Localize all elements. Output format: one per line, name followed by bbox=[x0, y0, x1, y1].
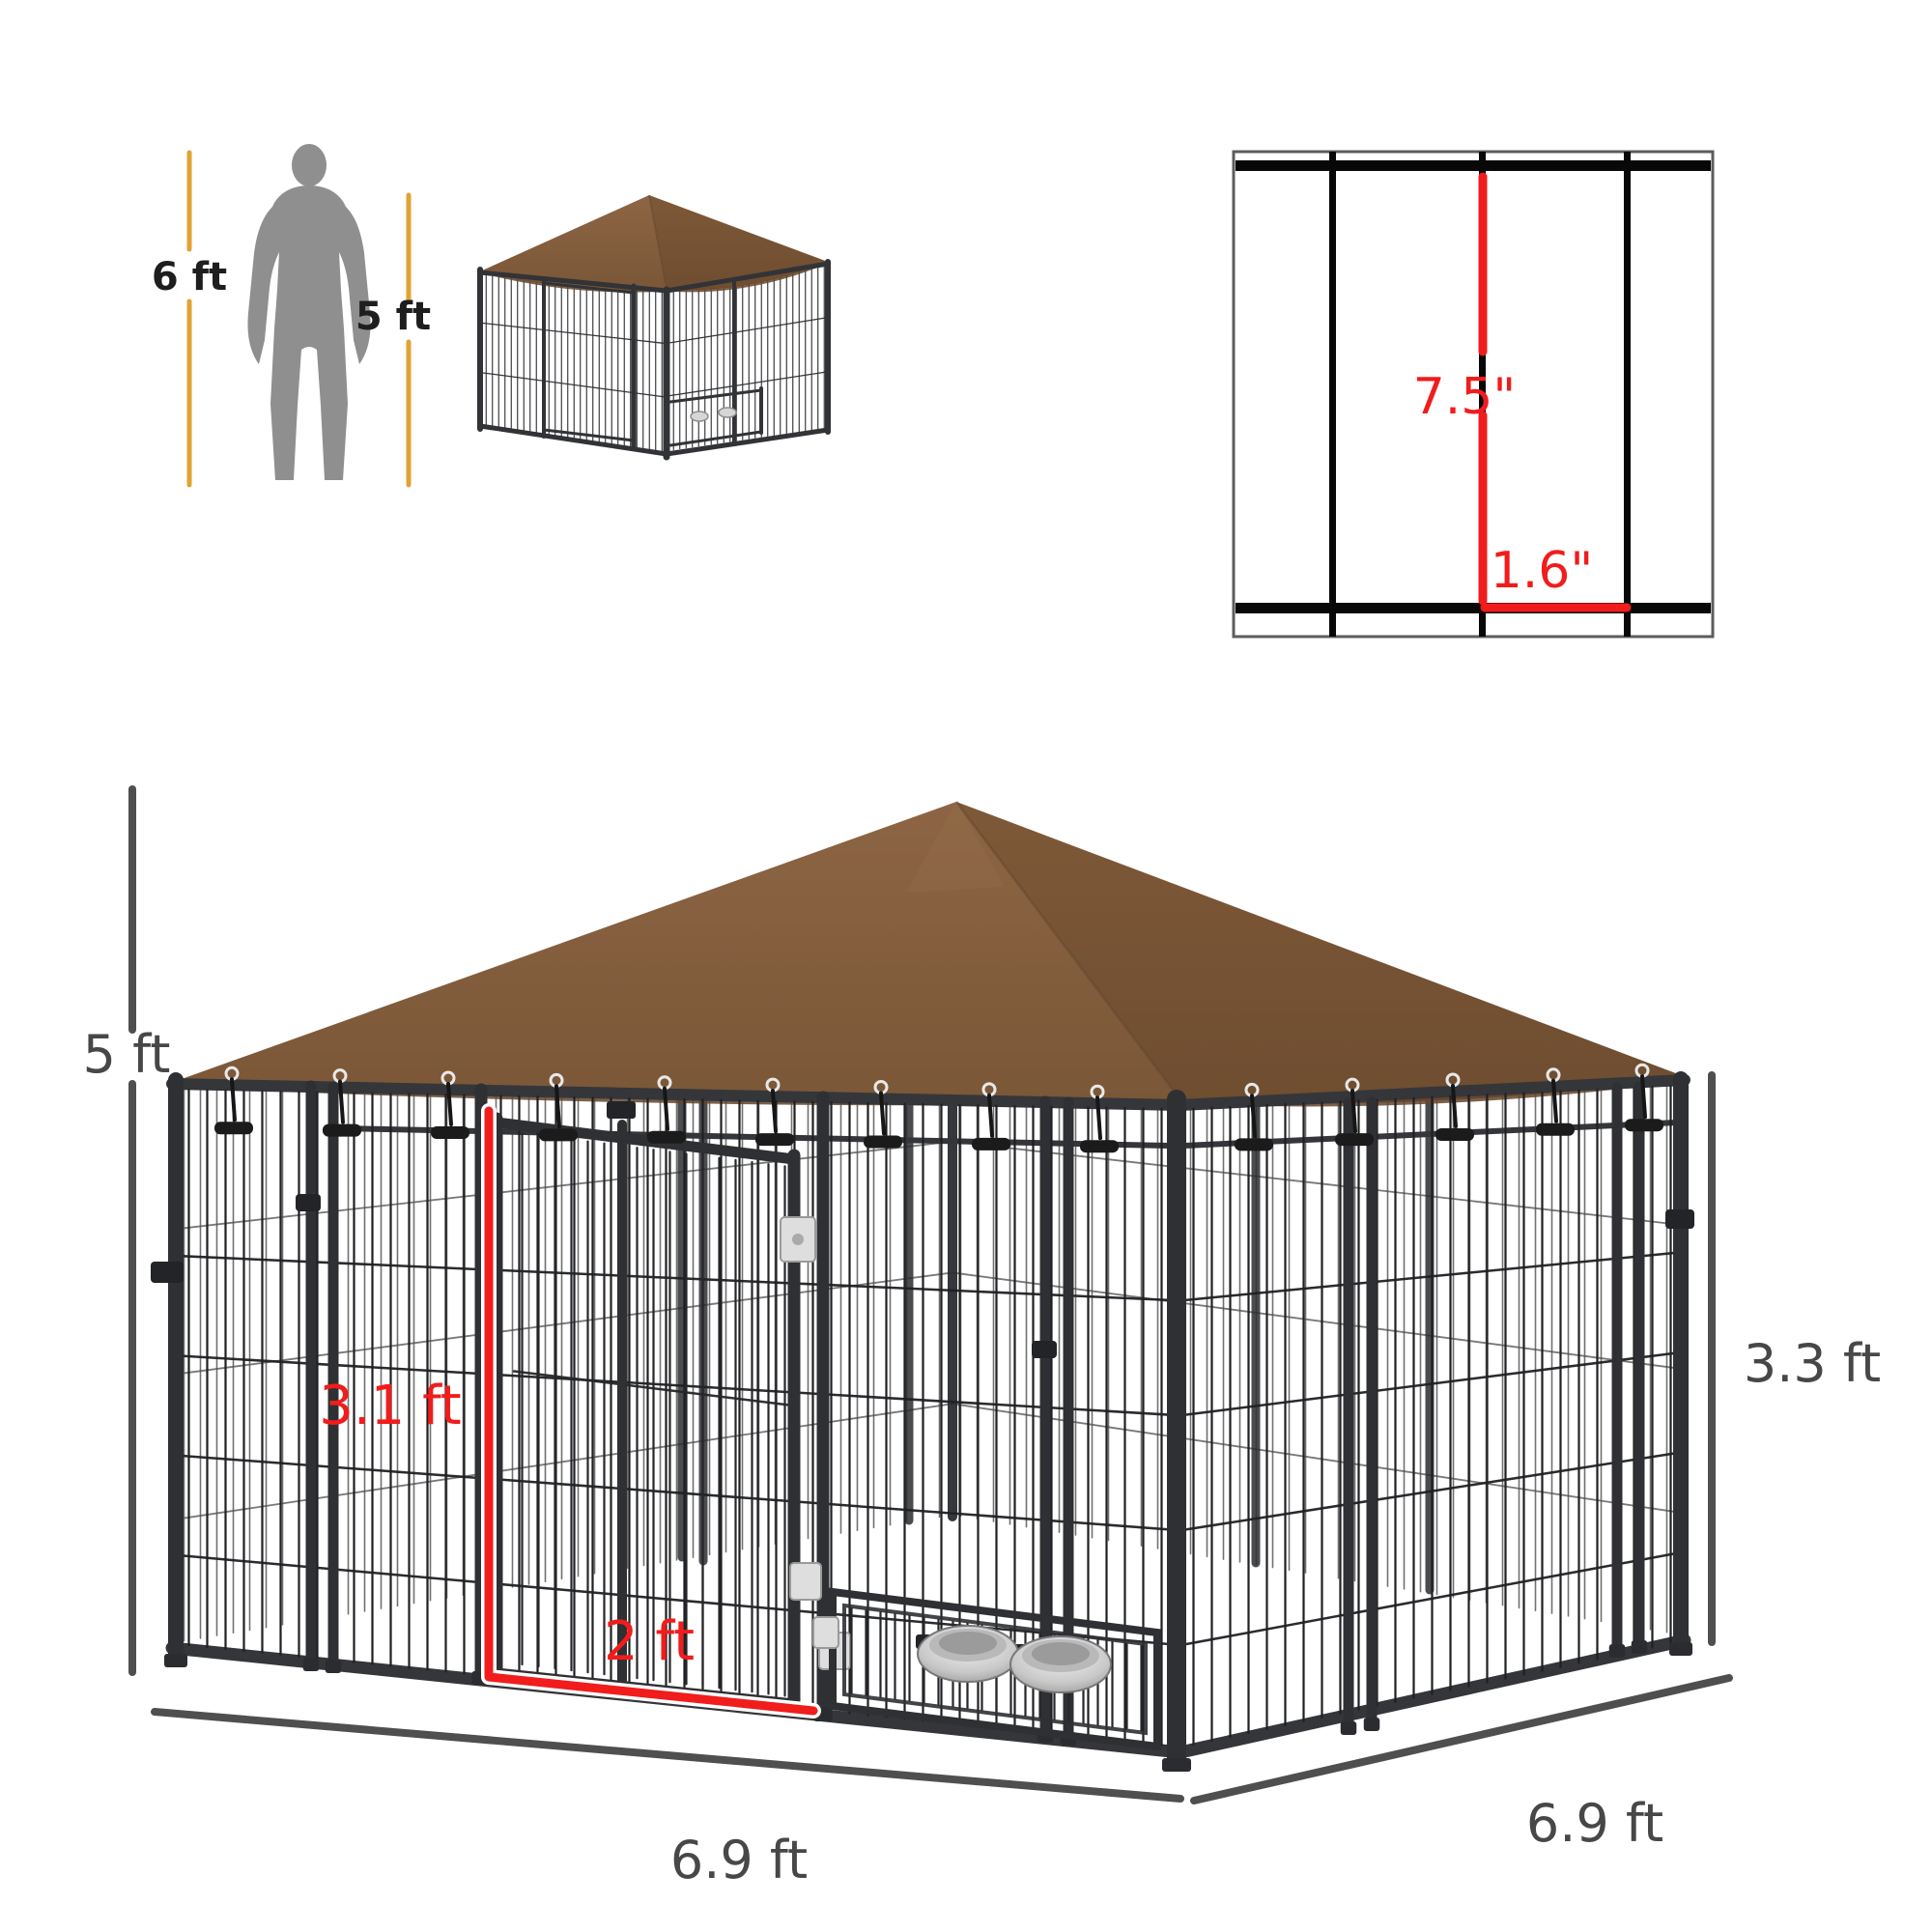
kennel-diagram-svg: 6 ft 5 ft bbox=[0, 0, 1932, 1932]
person-silhouette-icon bbox=[247, 144, 370, 480]
product-dimension-infographic: 6 ft 5 ft bbox=[0, 0, 1932, 1932]
mini-kennel-icon bbox=[480, 195, 828, 457]
mini-dog-bowls bbox=[691, 408, 736, 421]
door-latch bbox=[781, 1217, 815, 1262]
person-height-label: 6 ft bbox=[152, 255, 227, 299]
mini-kennel-height-label: 5 ft bbox=[355, 295, 431, 339]
label-base-width: 6.9 ft bbox=[670, 1830, 808, 1890]
label-door-height: 3.1 ft bbox=[319, 1375, 462, 1437]
scale-reference: 6 ft 5 ft bbox=[152, 144, 828, 485]
label-side-panel-height: 3.3 ft bbox=[1744, 1333, 1881, 1394]
label-door-width: 2 ft bbox=[604, 1610, 695, 1673]
mesh-horizontal-gap-label: 1.6" bbox=[1491, 542, 1594, 600]
mesh-vertical-gap-label: 7.5" bbox=[1413, 368, 1517, 426]
door-top-bracket bbox=[607, 1101, 636, 1119]
mesh-spacing-diagram: 7.5" 1.6" bbox=[1234, 152, 1713, 637]
dog-bowl bbox=[918, 1626, 1018, 1682]
dog-bowl bbox=[1010, 1636, 1111, 1692]
canopy bbox=[168, 802, 1689, 1104]
label-total-height: 5 ft bbox=[83, 1024, 171, 1085]
label-base-depth: 6.9 ft bbox=[1526, 1793, 1663, 1854]
hatch-latch bbox=[813, 1617, 838, 1648]
kennel-illustration bbox=[151, 802, 1694, 1772]
